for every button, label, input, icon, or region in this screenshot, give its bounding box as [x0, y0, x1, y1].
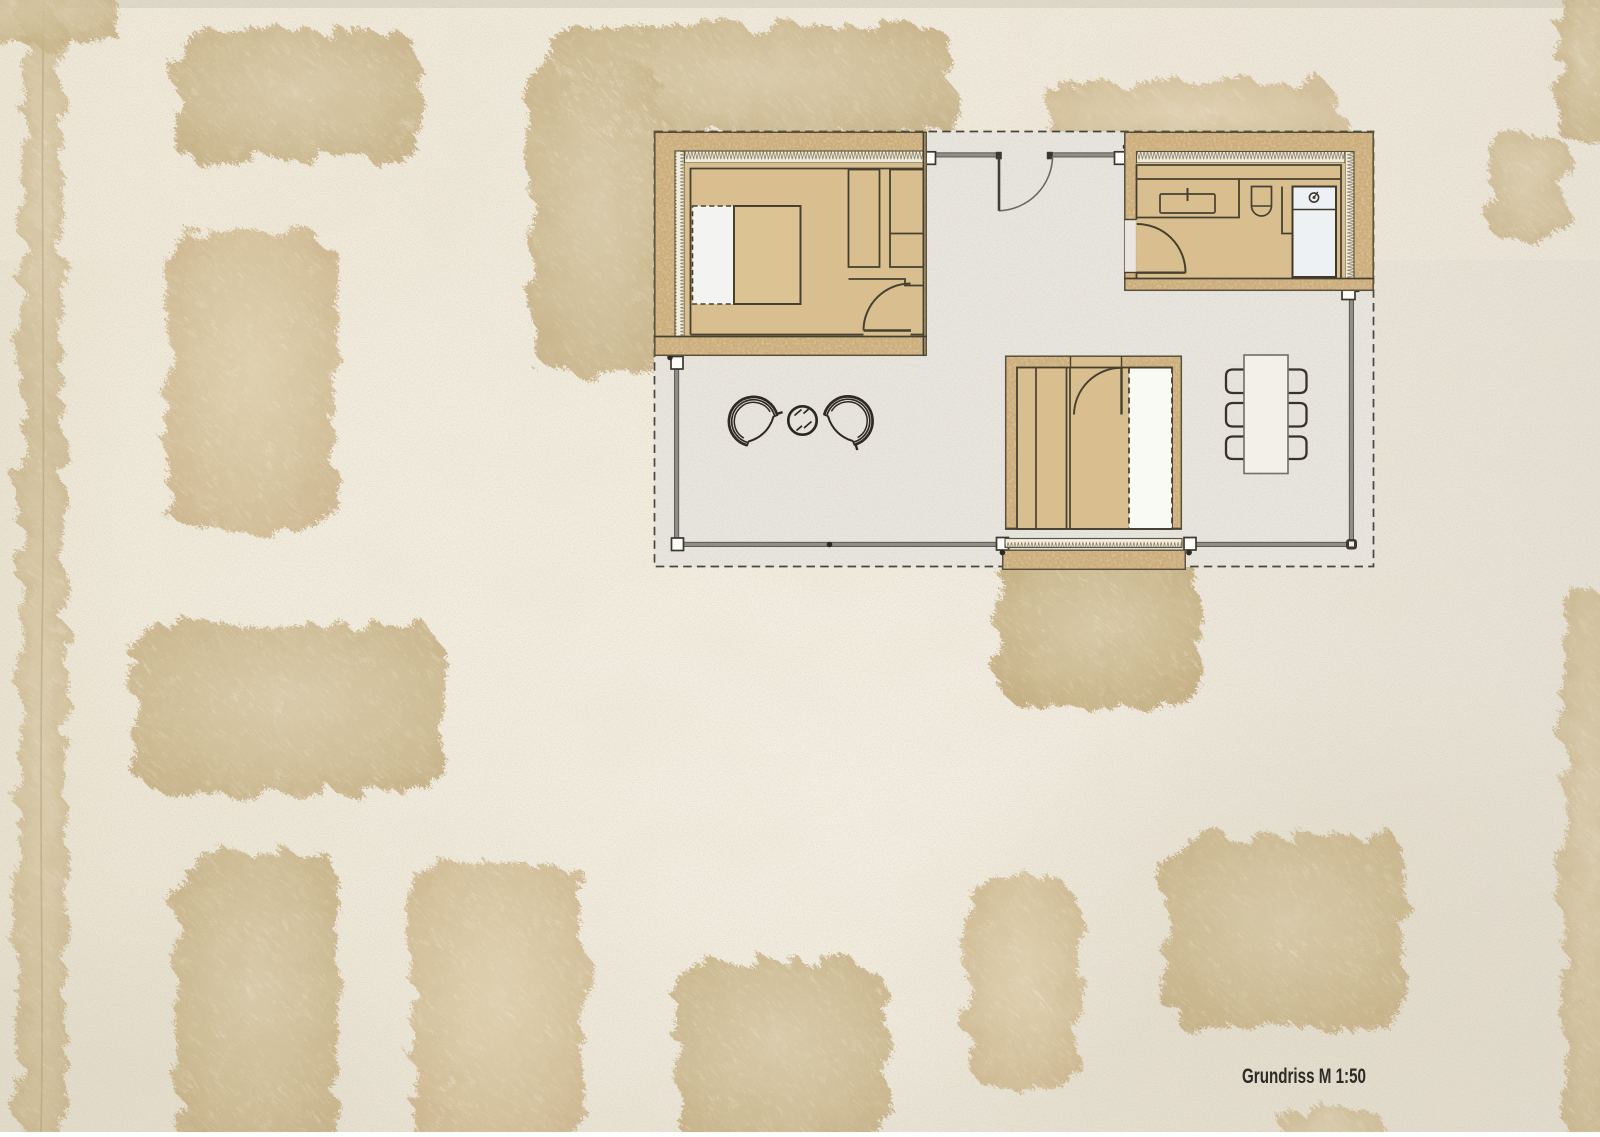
svg-text:Grundriss M 1:50: Grundriss M 1:50 [1242, 1065, 1366, 1088]
